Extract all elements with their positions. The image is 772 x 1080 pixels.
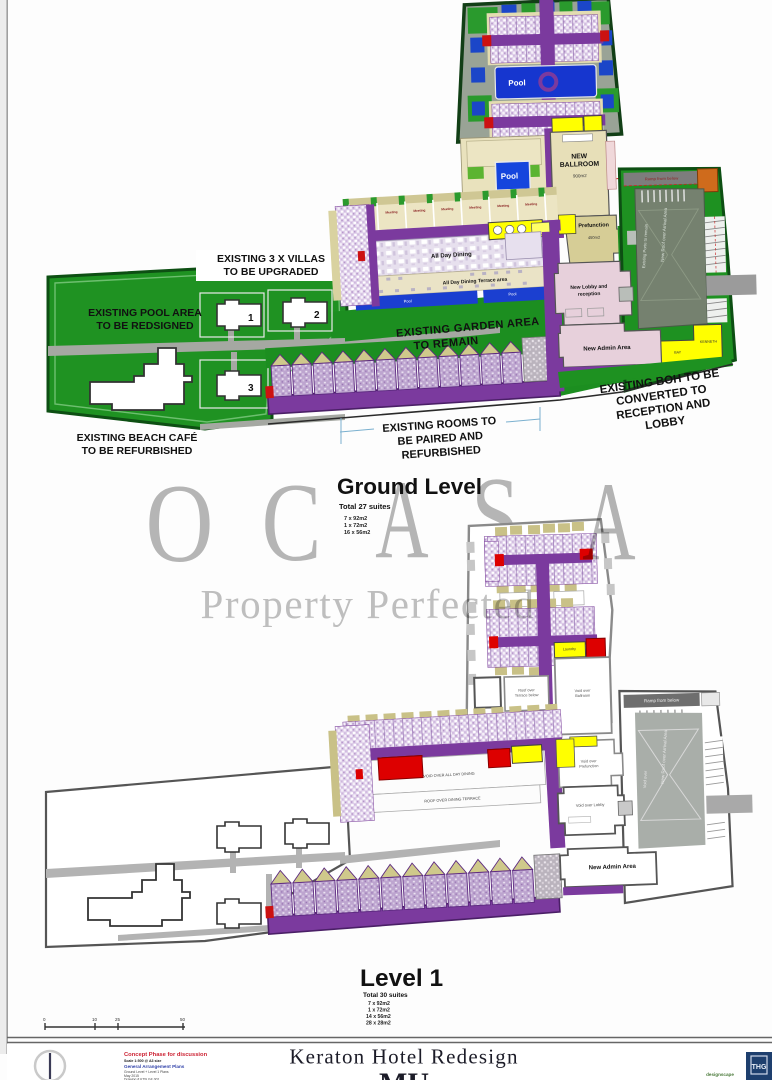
svg-text:TO BE UPGRADED: TO BE UPGRADED (224, 266, 319, 278)
svg-text:28 x 28m2: 28 x 28m2 (366, 1021, 391, 1027)
svg-text:Ballroom: Ballroom (575, 694, 590, 698)
svg-text:designscape: designscape (706, 1072, 734, 1077)
svg-text:14 x 56m2: 14 x 56m2 (366, 1014, 391, 1020)
svg-text:Ground Level: Ground Level (337, 474, 482, 499)
svg-text:Prefunction: Prefunction (579, 764, 598, 769)
svg-text:50: 50 (180, 1017, 186, 1022)
svg-text:Meeting: Meeting (441, 207, 453, 212)
svg-text:Total 27 suites: Total 27 suites (339, 502, 391, 511)
svg-text:25: 25 (115, 1017, 121, 1022)
svg-text:Meeting: Meeting (385, 210, 397, 215)
svg-text:NEW: NEW (571, 153, 588, 161)
svg-text:O: O (146, 462, 214, 585)
svg-text:900m2: 900m2 (573, 173, 587, 178)
svg-text:7 x 92m2: 7 x 92m2 (344, 516, 367, 522)
svg-text:7 x 92m2: 7 x 92m2 (368, 1001, 390, 1007)
svg-text:Pool: Pool (403, 298, 411, 303)
svg-text:Scale 1:500 @ A3 size: Scale 1:500 @ A3 size (124, 1059, 161, 1063)
svg-text:1: 1 (248, 313, 254, 324)
svg-text:Level 1: Level 1 (360, 965, 443, 992)
svg-text:General Arrangement Plans: General Arrangement Plans (124, 1064, 185, 1069)
svg-text:Pool: Pool (508, 78, 526, 87)
svg-text:EXISTING 3 X VILLAS: EXISTING 3 X VILLAS (217, 253, 325, 265)
svg-text:2: 2 (314, 310, 320, 321)
svg-text:Pool: Pool (508, 291, 516, 296)
svg-text:Keraton Hotel Redesign: Keraton Hotel Redesign (289, 1045, 518, 1069)
svg-text:KENNETH: KENNETH (700, 340, 718, 344)
svg-text:Meeting: Meeting (497, 203, 509, 208)
svg-text:1 x 72m2: 1 x 72m2 (344, 523, 367, 529)
svg-text:EXISTING POOL AREA: EXISTING POOL AREA (88, 307, 202, 319)
svg-text:1 x 72m2: 1 x 72m2 (368, 1008, 390, 1014)
svg-text:3: 3 (248, 383, 254, 394)
svg-text:Terrace below: Terrace below (515, 693, 539, 698)
svg-text:reception: reception (578, 291, 601, 298)
svg-text:Ramp from below: Ramp from below (645, 175, 680, 181)
svg-text:C: C (262, 461, 322, 585)
svg-text:Property Perfected: Property Perfected (200, 581, 535, 627)
svg-text:Pool: Pool (501, 171, 519, 181)
svg-text:10: 10 (92, 1017, 98, 1022)
svg-text:Meeting: Meeting (413, 208, 425, 213)
svg-text:450m2: 450m2 (588, 235, 601, 240)
svg-text:Void over Lobby: Void over Lobby (576, 802, 605, 808)
svg-text:Roof over: Roof over (518, 688, 535, 692)
svg-text:A: A (582, 459, 635, 584)
svg-text:TO BE REFURBISHED: TO BE REFURBISHED (82, 445, 193, 457)
svg-text:TO BE REDSIGNED: TO BE REDSIGNED (96, 320, 194, 332)
svg-text:16 x 56m2: 16 x 56m2 (344, 530, 370, 536)
svg-text:Meeting: Meeting (525, 202, 537, 207)
svg-text:Meeting: Meeting (469, 205, 481, 210)
svg-text:Prefunction: Prefunction (578, 222, 609, 229)
svg-text:Laundry: Laundry (563, 647, 576, 651)
svg-text:THG: THG (752, 1064, 767, 1071)
svg-text:Void over: Void over (581, 759, 598, 764)
svg-text:Concept Phase for discussion: Concept Phase for discussion (124, 1052, 208, 1058)
svg-text:BALLROOM: BALLROOM (560, 161, 600, 169)
svg-text:Total 30 suites: Total 30 suites (363, 992, 408, 999)
svg-text:MU: MU (379, 1067, 429, 1080)
svg-text:EXISTING BEACH CAFÉ: EXISTING BEACH CAFÉ (77, 431, 198, 444)
svg-text:Void over: Void over (575, 689, 592, 693)
svg-text:Ramp from below: Ramp from below (644, 697, 680, 703)
svg-text:BAY: BAY (674, 350, 682, 354)
